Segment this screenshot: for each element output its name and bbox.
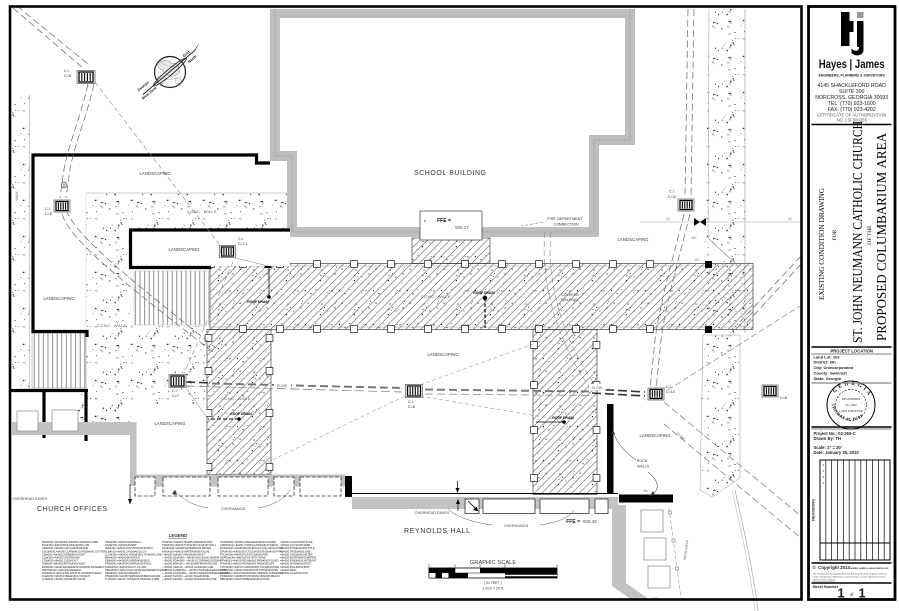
svg-text:C.I.: C.I. [238,237,244,241]
svg-text:C=5: C=5 [45,212,52,216]
svg-text:C.I.: C.I. [669,190,675,194]
svg-text:OF THE: OF THE [867,225,873,245]
svg-text:OVERHANGS: OVERHANGS [221,507,246,511]
svg-text:1: 1 [837,586,844,601]
svg-text:REYNOLDS HALL: REYNOLDS HALL [404,528,470,535]
svg-text:CONNECTION: CONNECTION [553,223,579,227]
svg-text:CONC. WALK: CONC. WALK [221,396,251,401]
svg-text:FLOW: FLOW [592,386,603,390]
svg-text:WALLS: WALLS [637,465,650,469]
svg-text:No. 2042: No. 2042 [845,403,857,407]
svg-text:C=8: C=8 [780,396,787,400]
svg-text:C.I.: C.I. [64,69,70,73]
svg-text:( IN FEET ): ( IN FEET ) [484,581,502,585]
svg-text:C.I.: C.I. [172,389,178,393]
svg-text:WALK: WALK [15,191,19,201]
svg-text:OVERHEAD EAVES: OVERHEAD EAVES [13,497,48,501]
svg-text:RBF&#160;=&#160;REBAR&#160;FOU: RBF&#160;=&#160;REBAR&#160;FOUND [220,577,270,581]
svg-text:consent of the engineer.: consent of the engineer. [813,579,837,582]
svg-text:Hayes | James: Hayes | James [819,59,885,71]
svg-text:REVISIONS: REVISIONS [811,499,816,521]
svg-text:C=8: C=8 [408,405,415,409]
svg-text:SCHOOL BUILDING: SCHOOL BUILDING [414,170,486,177]
svg-text:WV: WV [643,489,649,493]
svg-text:CONC. WALK: CONC. WALK [187,209,217,214]
svg-text:EXISTING CONDITION DRAWING: EXISTING CONDITION DRAWING [817,187,826,300]
svg-text:ROOF DRAIN: ROOF DRAIN [230,412,252,416]
svg-text:FLOW: FLOW [277,384,288,388]
svg-text:LANDSCAPING: LANDSCAPING [44,296,75,301]
svg-text:Date: January 26, 2010: Date: January 26, 2010 [814,450,860,455]
svg-text:State: Georgia: State: Georgia [814,376,842,381]
svg-text:LANDSCAPING: LANDSCAPING [140,171,171,176]
svg-text:C=7: C=7 [172,394,179,398]
svg-text:OVERHEAD EAVES: OVERHEAD EAVES [415,511,450,515]
svg-text:WV: WV [694,258,700,262]
svg-text:District: 6th: District: 6th [814,360,837,365]
svg-text:COVERED: COVERED [561,293,579,297]
svg-text:CONC. WALK: CONC. WALK [421,294,451,299]
svg-text:908.27: 908.27 [455,225,469,230]
svg-text:×: × [424,219,427,225]
svg-text:858.39: 858.39 [583,519,597,524]
svg-text:C.I.: C.I. [666,385,672,389]
svg-text:ENGINEERS, PLANNERS & SURVEYOR: ENGINEERS, PLANNERS & SURVEYORS [819,74,886,78]
svg-text:ROCK: ROCK [637,459,648,463]
svg-text:not be reproduced, published,: not be reproduced, published, or used in… [813,576,887,579]
svg-text:LANDSCAPING: LANDSCAPING [169,247,200,252]
svg-text:ST. JOHN NEUMANN CATHOLIC CHUR: ST. JOHN NEUMANN CATHOLIC CHURCH [851,121,866,343]
svg-text:Drawn By: TH: Drawn By: TH [814,436,841,441]
svg-text:FFE =: FFE = [566,519,580,525]
svg-text:PROPOSED COLUMBARIUM AREA: PROPOSED COLUMBARIUM AREA [875,132,890,341]
svg-text:CHURCH OFFICES: CHURCH OFFICES [37,506,107,513]
svg-text:FIRE DEPARTMENT: FIRE DEPARTMENT [547,217,583,221]
svg-text:1: 1 [858,586,865,601]
svg-text:CONC. WALK: CONC. WALK [97,323,127,328]
svg-text:C=10: C=10 [666,390,675,394]
svg-text:City: Unincorporated: City: Unincorporated [814,365,854,370]
svg-text:© Copyright 2014: © Copyright 2014 [813,565,851,570]
svg-text:PROJECT LOCATION: PROJECT LOCATION [830,349,873,354]
svg-text:C=6: C=6 [64,74,71,78]
svg-text:LAND SURVEYOR: LAND SURVEYOR [839,410,862,413]
svg-text:LANDSCAPING: LANDSCAPING [640,433,671,438]
svg-text:LANDSCAPING: LANDSCAPING [155,421,186,426]
svg-text:ROOF DRAIN: ROOF DRAIN [552,416,574,420]
svg-text:LANDSCAPING: LANDSCAPING [428,352,459,357]
svg-text:C=7.1: C=7.1 [238,242,248,246]
svg-text:FFE =: FFE = [437,218,451,224]
svg-text:LANDSCAPING: LANDSCAPING [618,237,649,242]
svg-text:ROOF DRAIN: ROOF DRAIN [473,291,495,295]
svg-text:WALKWAY: WALKWAY [561,298,579,302]
svg-text:Sheet Number: Sheet Number [813,585,839,589]
svg-text:GRAPHIC SCALE: GRAPHIC SCALE [470,560,516,566]
svg-text:OVERHANGS: OVERHANGS [504,524,529,528]
svg-text:This drawing and the reproduct: This drawing and the reproductions are t… [813,573,888,576]
svg-text:C=10: C=10 [668,195,677,199]
svg-text:C.I.: C.I. [408,400,414,404]
svg-text:ROOF DRAIN: ROOF DRAIN [247,300,269,304]
svg-text:1 inch = 20 ft.: 1 inch = 20 ft. [482,587,504,591]
svg-text:REGISTERED: REGISTERED [842,397,861,401]
svg-text:GV&#160;=&#160;GAS&#160;VALVE: GV&#160;=&#160;GAS&#160;VALVE [42,577,86,581]
svg-text:C.I.: C.I. [45,207,51,211]
svg-text:—&#160;X&#160;—&#160;FENCE&#16: —&#160;X&#160;—&#160;FENCE&#160;LINE [162,577,217,581]
svg-text:LEGEND: LEGEND [169,533,189,538]
svg-text:FOR: FOR [832,229,838,240]
svg-text:WV: WV [691,236,697,240]
svg-text:TC&#160;=&#160;TOP&#160;OF&#16: TC&#160;=&#160;TOP&#160;OF&#160;CURB [105,577,159,581]
svg-text:=&#160;A/C&#160;UNIT: =&#160;A/C&#160;UNIT [280,571,309,575]
svg-text:HAYES, JAMES & ASSOCIATES, INC: HAYES, JAMES & ASSOCIATES, INC. [851,567,890,570]
svg-text:County: Gwinnett: County: Gwinnett [814,371,848,376]
